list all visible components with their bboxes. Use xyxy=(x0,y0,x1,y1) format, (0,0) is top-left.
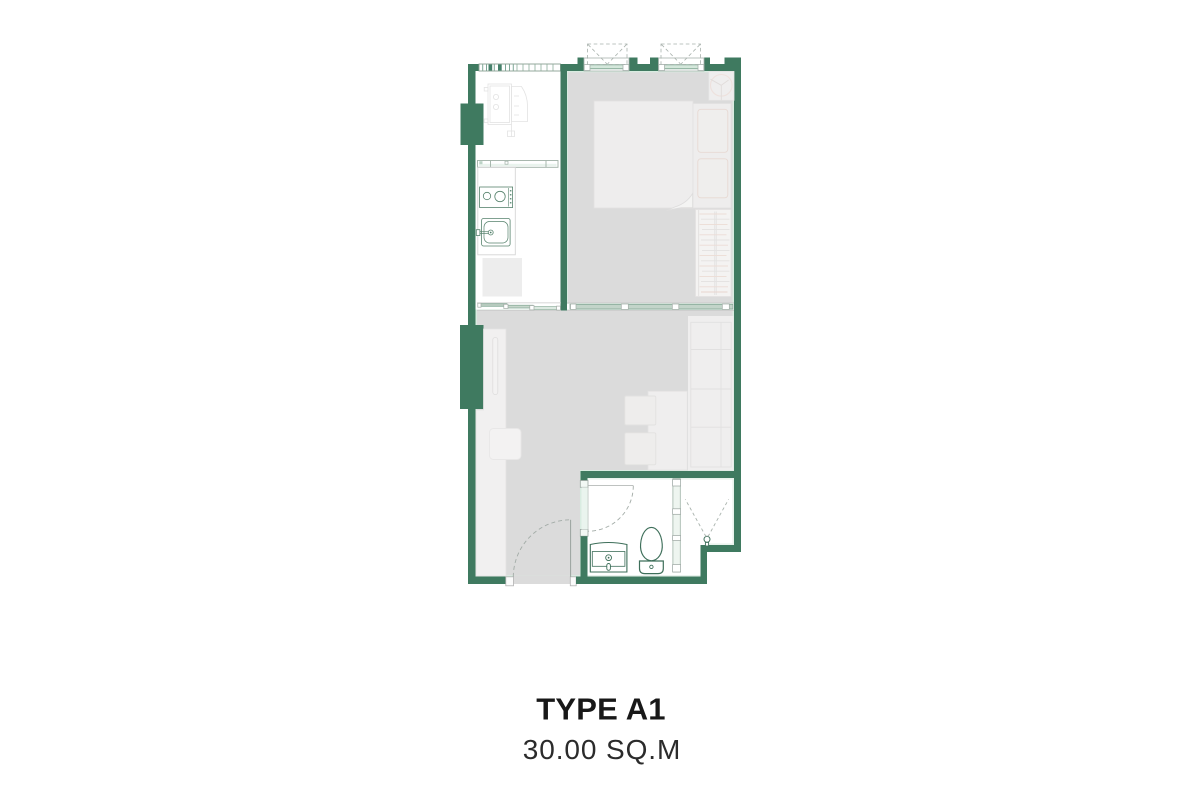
svg-text:TYPE A1: TYPE A1 xyxy=(536,692,665,727)
svg-text:30.00 SQ.M: 30.00 SQ.M xyxy=(523,734,681,765)
